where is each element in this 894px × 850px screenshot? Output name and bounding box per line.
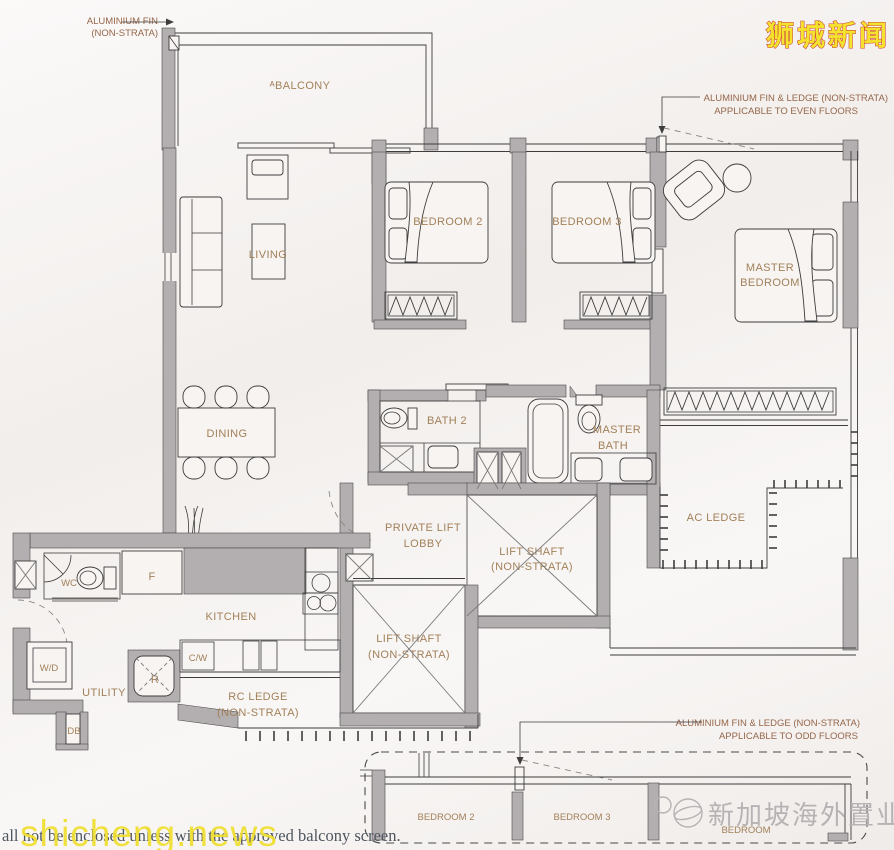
- annotation-text: APPLICABLE TO ODD FLOORS: [719, 731, 858, 742]
- balcony-area: ᴬBALCONY: [162, 28, 438, 153]
- lift-shaft-lower-label-1: LIFT SHAFT: [376, 633, 442, 645]
- living-label: LIVING: [249, 249, 287, 261]
- bedroom2-label: BEDROOM 2: [413, 216, 483, 228]
- ac-ledge-label: AC LEDGE: [687, 512, 746, 524]
- watermark-bottom-right-text: 新加坡海外置业: [708, 800, 894, 830]
- lift-shaft-upper-label-2: (NON-STRATA): [491, 561, 573, 573]
- master-bath-label-1: MASTER: [593, 424, 641, 436]
- bedroom-3: BEDROOM 3: [552, 152, 666, 390]
- globe-icon: [655, 797, 703, 827]
- lower-bedroom3-label: BEDROOM 3: [553, 812, 610, 823]
- master-bedroom: MASTER BEDROOM: [659, 155, 848, 425]
- living-room: LIVING: [180, 155, 288, 307]
- kitchen: WC F KITCHEN: [13, 533, 370, 650]
- annotation-text: APPLICABLE TO EVEN FLOORS: [714, 106, 858, 117]
- private-lift-lobby: PRIVATE LIFT LOBBY: [329, 483, 468, 718]
- master-bedroom-label-1: MASTER: [746, 262, 794, 274]
- lift-shaft-upper-label-1: LIFT SHAFT: [499, 546, 565, 558]
- watermark-bottom-left-text: shicheng.news: [20, 813, 278, 850]
- annotation-text: (NON-STRATA): [91, 28, 158, 39]
- floor-plan: ᴬBALCONY LIVING: [0, 0, 894, 850]
- db-label: DB: [67, 726, 80, 737]
- master-bedroom-label-2: BEDROOM: [740, 277, 800, 289]
- floor-plan-page: ᴬBALCONY LIVING: [0, 0, 894, 850]
- lobby-label-2: LOBBY: [404, 538, 443, 550]
- wd-label: W/D: [40, 663, 59, 674]
- annotation-text: ALUMINIUM FIN & LEDGE (NON-STRATA): [676, 718, 860, 729]
- rc-ledge-label-1: RC LEDGE: [228, 691, 287, 703]
- watermark-overseas: 新加坡海外置业: [655, 797, 894, 830]
- utility-label: UTILITY: [82, 687, 126, 699]
- lower-bedroom2-label: BEDROOM 2: [417, 812, 474, 823]
- bath2-label: BATH 2: [427, 415, 467, 427]
- kitchen-label: KITCHEN: [205, 611, 256, 623]
- hob-icon: [308, 597, 321, 610]
- fridge-label: F: [148, 571, 155, 583]
- utility-area: DB W/D UTILITY R C/W: [13, 628, 340, 750]
- lift-shaft-lower-label-2: (NON-STRATA): [368, 649, 450, 661]
- watermark-top-right-text: 狮城新闻: [766, 20, 890, 51]
- watermark-shicheng-news: shicheng.news: [20, 813, 278, 850]
- bedroom3-label: BEDROOM 3: [552, 216, 622, 228]
- balcony-label: ᴬBALCONY: [269, 80, 331, 92]
- sink-icon: [312, 574, 330, 592]
- master-bath-label-2: BATH: [598, 440, 628, 452]
- dining-label: DINING: [207, 428, 248, 440]
- lobby-label-1: PRIVATE LIFT: [385, 522, 461, 534]
- dining-area: DINING: [178, 386, 275, 542]
- annotation-text: ALUMINIUM FIN: [87, 16, 158, 27]
- annotation-odd-floors: ALUMINIUM FIN & LEDGE (NON-STRATA) APPLI…: [515, 718, 860, 790]
- rc-ledge-label-2: (NON-STRATA): [217, 707, 299, 719]
- wc-label: WC: [61, 578, 77, 589]
- lift-shaft-upper: LIFT SHAFT (NON-STRATA): [467, 483, 610, 628]
- bath-2: BATH 2: [368, 384, 526, 492]
- cw-label: C/W: [189, 653, 208, 664]
- bedroom-2: BEDROOM 2: [372, 152, 526, 329]
- watermark-shicheng: 狮城新闻: [766, 20, 890, 51]
- annotation-text: ALUMINIUM FIN & LEDGE (NON-STRATA): [704, 93, 888, 104]
